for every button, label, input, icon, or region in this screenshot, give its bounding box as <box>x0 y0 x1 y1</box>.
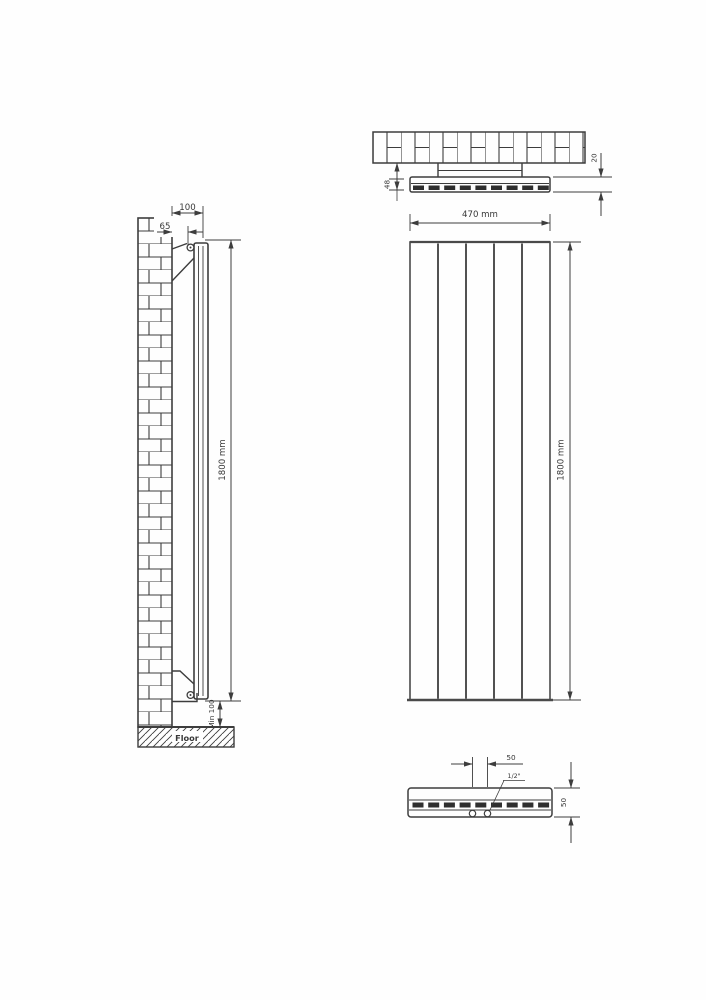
panel-fins-top <box>413 186 549 191</box>
bracket-stems-top <box>438 163 522 177</box>
floor-label: Floor <box>175 733 200 743</box>
radiator-top-view <box>410 177 550 192</box>
valve-connection-left <box>469 810 475 816</box>
dim-bottom-depth: 50 <box>554 762 580 843</box>
side-view: 100 65 1800 mm Min 100 Floor <box>138 203 241 747</box>
dim-label-100: 100 <box>179 203 195 213</box>
dim-side-height: 1800 mm <box>205 240 241 701</box>
dim-valve-spacing: 50 <box>451 753 523 787</box>
dim-width: 470 mm <box>410 210 550 231</box>
valve-connection-right <box>484 810 490 816</box>
radiator-front-body <box>407 242 553 700</box>
dim-label-50-spacing: 50 <box>506 753 516 762</box>
dim-label-min100: Min 100 <box>207 699 216 729</box>
dim-wall-gap: 48 <box>383 163 405 201</box>
panel-fins-bottom <box>413 803 550 808</box>
bottom-view: 50 1/2" 50 <box>408 753 580 843</box>
panel-dividers <box>438 244 522 699</box>
dim-label-48: 48 <box>383 180 392 190</box>
dim-label-20: 20 <box>590 153 599 163</box>
front-view: 470 mm 1800 mm <box>407 210 581 700</box>
valve-thread-label: 1/2" <box>507 772 520 780</box>
dim-total-depth: 100 <box>172 203 203 238</box>
dim-floor-clearance: Min 100 <box>207 699 220 729</box>
wall-section <box>138 218 172 727</box>
dim-label-50-depth: 50 <box>559 798 568 808</box>
dim-front-height: 1800 mm <box>553 242 581 700</box>
top-view: 48 20 <box>373 132 612 216</box>
dim-label-1800-front: 1800 mm <box>557 439 567 480</box>
wall-top-section <box>373 132 585 163</box>
radiator-bottom-view <box>408 788 552 817</box>
dim-label-65: 65 <box>160 222 171 232</box>
wall-bracket-top <box>172 244 194 282</box>
dim-label-470: 470 mm <box>462 210 498 220</box>
radiator-side-profile <box>194 243 208 699</box>
dim-label-1800-side: 1800 mm <box>218 439 228 480</box>
technical-drawing-canvas: 100 65 1800 mm Min 100 Floor <box>0 0 706 1000</box>
radiator-installation-diagram: 100 65 1800 mm Min 100 Floor <box>0 0 706 1000</box>
